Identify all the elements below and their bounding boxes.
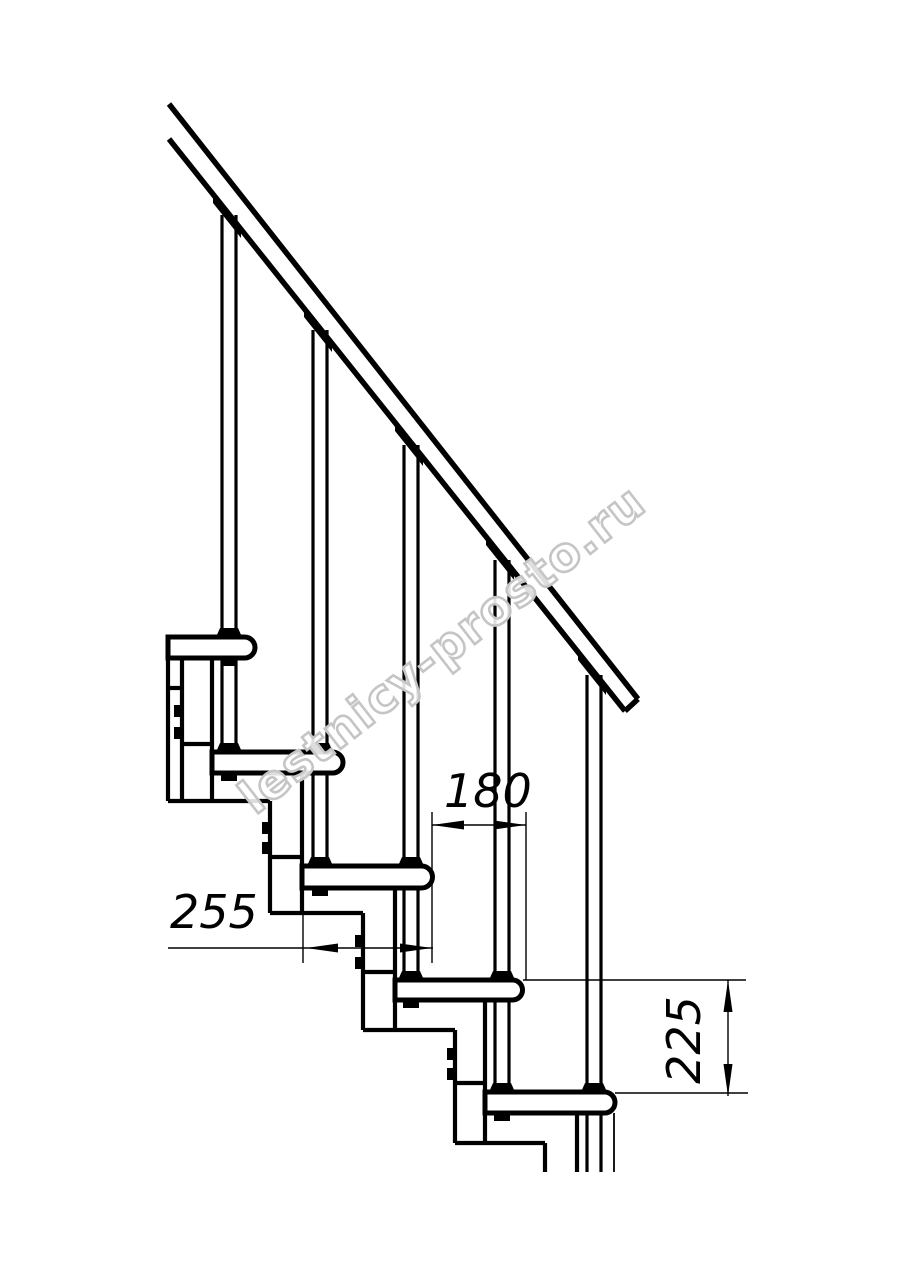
- baluster-foot: [398, 857, 424, 866]
- step-4: [395, 980, 523, 1000]
- baluster-foot: [307, 857, 333, 866]
- step-5: [485, 1092, 615, 1113]
- step-1: [168, 637, 255, 658]
- dimension-label: 255: [170, 885, 258, 939]
- staircase-side-view-drawing: 255 180 225 lestnicy-prosto.ru: [0, 0, 914, 1280]
- module-clamp-tab: [174, 705, 183, 717]
- baluster-foot: [581, 1083, 607, 1092]
- fastener-nut: [494, 1113, 510, 1121]
- baluster-foot: [216, 628, 242, 637]
- staircase-drawing-page: 255 180 225 lestnicy-prosto.ru: [0, 0, 914, 1280]
- dimension-label: 180: [444, 764, 532, 818]
- module-clamp-tab: [355, 957, 364, 969]
- fastener-nut: [221, 658, 237, 666]
- baluster-foot: [398, 971, 424, 980]
- arrowhead: [432, 821, 464, 830]
- module-clamp-tab: [262, 842, 271, 854]
- support-module-5: [545, 1113, 614, 1172]
- fastener-nut: [312, 888, 328, 896]
- module-clamp-tab: [447, 1048, 456, 1060]
- handrail-end-cap: [625, 699, 638, 711]
- baluster-foot: [489, 971, 515, 980]
- dimension-225: 225: [523, 980, 748, 1096]
- dimension-label: 225: [657, 996, 711, 1084]
- watermark-text: lestnicy-prosto.ru: [229, 474, 656, 825]
- module-clamp-tab: [355, 935, 364, 947]
- arrowhead: [724, 1064, 733, 1096]
- arrowhead: [724, 980, 733, 1012]
- arrowhead: [400, 944, 432, 953]
- module-clamp-tab: [447, 1068, 456, 1080]
- module-clamp-tab: [174, 727, 183, 739]
- arrowhead: [306, 944, 338, 953]
- step-3: [302, 866, 433, 888]
- baluster-foot: [489, 1083, 515, 1092]
- baluster-foot: [216, 743, 242, 752]
- fastener-nut: [403, 1000, 419, 1008]
- dimension-180: 180: [432, 764, 532, 980]
